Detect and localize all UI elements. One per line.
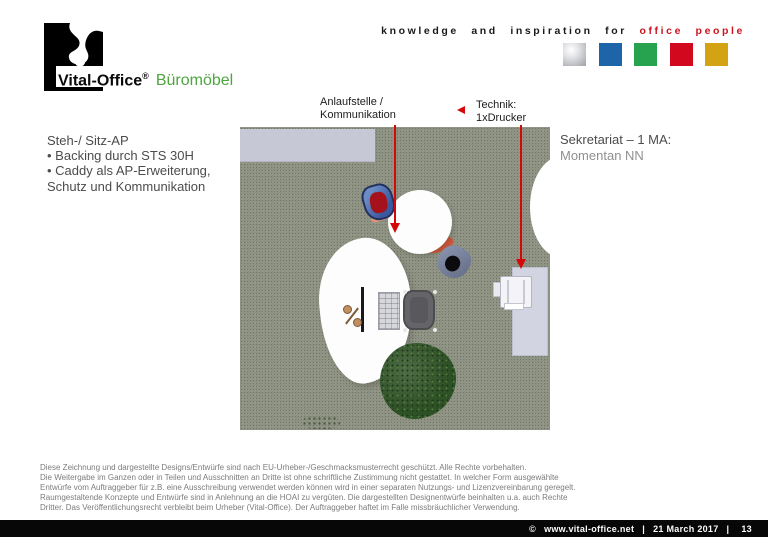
annotation-arrow-communication [394, 125, 396, 223]
green-square-icon [634, 43, 657, 66]
lamp-base [353, 318, 362, 327]
tagline-prefix: knowledge and inspiration for [381, 25, 627, 37]
legal-line: Raumgestaltende Konzepte und Entwürfe si… [40, 493, 575, 503]
chair-casters [403, 290, 407, 294]
footer-bar: © www.vital-office.net | 21 March 2017 |… [0, 520, 768, 537]
palette-row [563, 43, 728, 66]
annotation-label-line: Anlaufstelle / [320, 96, 396, 109]
task-chair-seat [410, 297, 428, 323]
footer-separator: | [642, 524, 645, 534]
lamp-head [343, 305, 352, 314]
legal-line: Entwürfe vom Auftraggeber für z.B. eine … [40, 483, 575, 493]
desk-lamp [343, 302, 367, 330]
annotation-label-line: Kommunikation [320, 109, 396, 122]
legal-line: Diese Zeichnung und dargestellte Designs… [40, 463, 575, 473]
visitor-headrest [442, 253, 463, 274]
left-notes-line: • Backing durch STS 30H [47, 148, 211, 163]
copyright-icon: © [529, 524, 536, 534]
footer-date: 21 March 2017 [653, 524, 718, 534]
left-notes-line: Schutz und Kommunikation [47, 179, 211, 194]
legal-line: Dritter. Das Veröffentlichungsrecht verb… [40, 503, 575, 513]
annotation-label-line: Technik: [476, 99, 526, 112]
plant [380, 343, 456, 419]
wall-cabinet [240, 129, 375, 162]
footer-separator: | [727, 524, 730, 534]
right-notes: Sekretariat – 1 MA: Momentan NN [560, 132, 671, 163]
lounge-chair-cushion [369, 191, 389, 214]
annotation-label-communication: Anlaufstelle / Kommunikation [320, 96, 396, 121]
printer-tray [504, 303, 524, 310]
legal-text: Diese Zeichnung und dargestellte Designs… [40, 463, 575, 513]
printer-detail [523, 280, 525, 304]
right-notes-line2: Momentan NN [560, 148, 671, 164]
desk-edge-right [530, 156, 550, 258]
product-line: Büromöbel [156, 72, 233, 89]
legal-line: Die Weitergabe im Ganzen oder in Teilen … [40, 473, 575, 483]
left-notes: Steh-/ Sitz-AP • Backing durch STS 30H •… [47, 133, 211, 194]
arrow-down-icon [390, 223, 400, 233]
registered-mark-icon: ® [142, 71, 149, 81]
gold-square-icon [705, 43, 728, 66]
silver-square-icon [563, 43, 586, 66]
annotation-arrow-technik [520, 125, 522, 259]
arrow-down-icon [516, 259, 526, 269]
small-plant [302, 416, 340, 429]
page-number: 13 [741, 524, 752, 534]
annotation-label-line: 1xDrucker [476, 112, 526, 125]
task-chair [403, 290, 435, 330]
blue-square-icon [599, 43, 622, 66]
printer-detail [507, 280, 509, 304]
right-notes-line1: Sekretariat – 1 MA: [560, 132, 671, 148]
footer-website: www.vital-office.net [544, 524, 634, 534]
brand-name: Vital-Office [58, 72, 142, 89]
left-notes-title: Steh-/ Sitz-AP [47, 133, 211, 148]
logo-wordmark: Vital-Office®Büromöbel [56, 66, 237, 87]
round-table [388, 190, 452, 254]
slide: Vital-Office®Büromöbel knowledge and ins… [0, 0, 768, 543]
left-notes-line: • Caddy als AP-Erweiterung, [47, 163, 211, 178]
tagline: knowledge and inspiration for office peo… [381, 25, 745, 37]
tagline-highlight: office people [639, 25, 745, 37]
annotation-label-technik: Technik: 1xDrucker [476, 99, 526, 124]
red-square-icon [670, 43, 693, 66]
pointer-left-icon [457, 106, 465, 114]
keyboard [378, 292, 400, 330]
